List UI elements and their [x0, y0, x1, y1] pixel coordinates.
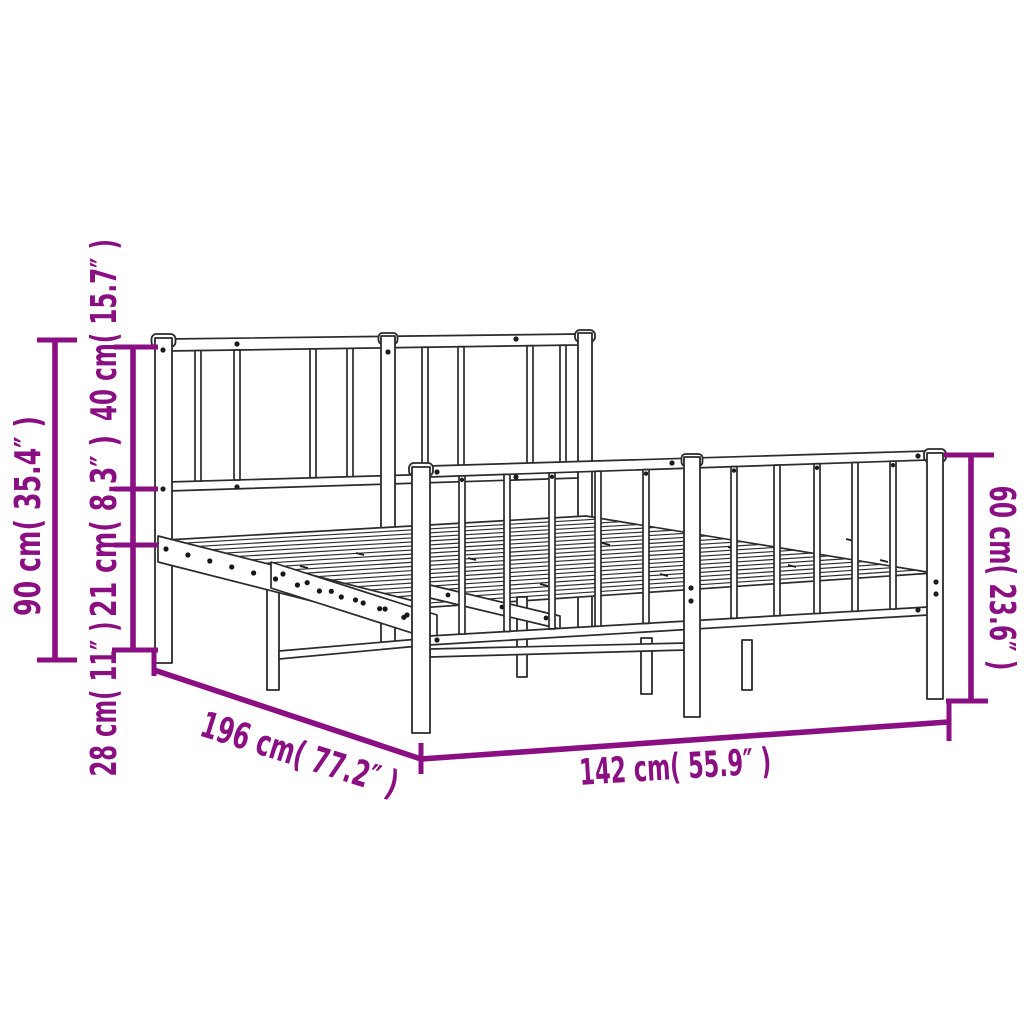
bed-frame-drawing [152, 330, 947, 733]
rail-hole [280, 571, 285, 576]
bolt-dot [434, 469, 439, 474]
bolt-dot [933, 579, 938, 584]
rail-hole [446, 593, 451, 598]
bolt-dot [385, 349, 390, 354]
rail-hole [339, 594, 344, 599]
dimension-overall-height: 90 cm( 35.4″ ) [8, 340, 77, 660]
bolt-dot [513, 474, 518, 479]
bolt-dot [160, 486, 165, 491]
headboard-bar [560, 345, 566, 470]
rail-hole [273, 576, 278, 581]
headboard-bar [195, 351, 201, 482]
dimension-label-headboard-panel-height: 40 cm( 15.7″ ) [84, 239, 125, 421]
bolt-dot [160, 347, 165, 352]
bolt-dot [644, 471, 648, 475]
dimension-label-under-bed-clearance: 28 cm( 11″ ) [84, 622, 125, 777]
bolt-dot [891, 463, 895, 467]
dimension-label-overall-height: 90 cm( 35.4″ ) [8, 416, 49, 616]
bolt-dot [460, 478, 464, 482]
rail-hole [353, 597, 358, 602]
headboard-bar [234, 350, 240, 480]
rail-hole [377, 606, 382, 611]
footboard-bar [504, 474, 510, 631]
rail-hole [251, 570, 256, 575]
bolt-dot [550, 475, 554, 479]
dimension-height-breakdown: 40 cm( 15.7″ ) 21 cm( 8.3″ ) 28 cm( 11″ … [84, 239, 158, 777]
footboard-bar [774, 465, 780, 616]
footboard-far-post [927, 453, 943, 699]
headboard-bar [527, 346, 533, 472]
bolt-dot [234, 341, 239, 346]
rail-hole [207, 558, 212, 563]
bolt-dot [815, 466, 819, 470]
bolt-dot [234, 484, 239, 489]
bolt-dot [434, 637, 439, 642]
rail-hole [544, 616, 549, 621]
dimension-label-footboard-height: 60 cm( 23.6″ ) [981, 486, 1022, 671]
floor-stretcher-bar [279, 639, 419, 659]
rail-hole [317, 588, 322, 593]
footboard-bar [459, 476, 465, 634]
footboard-near-post [412, 467, 430, 733]
footboard-bar [814, 464, 820, 614]
footboard-bar [731, 467, 737, 619]
rail-hole [361, 600, 366, 605]
rail-hole [163, 546, 168, 551]
rail-hole [295, 582, 300, 587]
headboard-bar [347, 348, 353, 476]
rail-hole [401, 615, 406, 620]
bolt-dot [688, 598, 693, 603]
footboard-bar [549, 473, 555, 629]
headboard-near-post [155, 338, 172, 663]
dimension-label-side-rail-height: 21 cm( 8.3″ ) [84, 435, 125, 617]
side-rail-leg [267, 583, 279, 690]
dimension-bed-length: 196 cm( 77.2″ ) [154, 648, 421, 805]
rail-hole [185, 552, 190, 557]
footboard-bar [890, 461, 896, 609]
bolt-dot [513, 336, 518, 341]
bolt-dot [915, 453, 920, 458]
bed-frame-dimension-diagram: 90 cm( 35.4″ ) 40 cm( 15.7″ ) 21 cm( 8.3… [0, 0, 1024, 1024]
rail-hole [305, 580, 310, 585]
headboard-bar [458, 347, 464, 474]
product-dimension-image: 90 cm( 35.4″ ) 40 cm( 15.7″ ) 21 cm( 8.3… [0, 0, 1024, 1024]
dimension-label-bed-width: 142 cm( 55.9″ ) [578, 741, 772, 794]
bolt-dot [669, 460, 674, 465]
dimension-footboard-height: 60 cm( 23.6″ ) [944, 455, 1022, 701]
headboard-bar [422, 347, 428, 474]
rail-hole [229, 564, 234, 569]
bolt-dot [915, 607, 920, 612]
bolt-dot [688, 585, 693, 590]
far-rail-leg [742, 640, 752, 690]
footboard-bar [595, 471, 601, 626]
rail-hole [382, 606, 387, 611]
footboard-bar [643, 470, 649, 624]
footboard-bar [852, 462, 858, 611]
slat-clip-mark [880, 560, 888, 562]
bolt-dot [933, 591, 938, 596]
rail-hole [329, 589, 334, 594]
bolt-dot [732, 468, 736, 472]
headboard-bar [310, 349, 316, 478]
